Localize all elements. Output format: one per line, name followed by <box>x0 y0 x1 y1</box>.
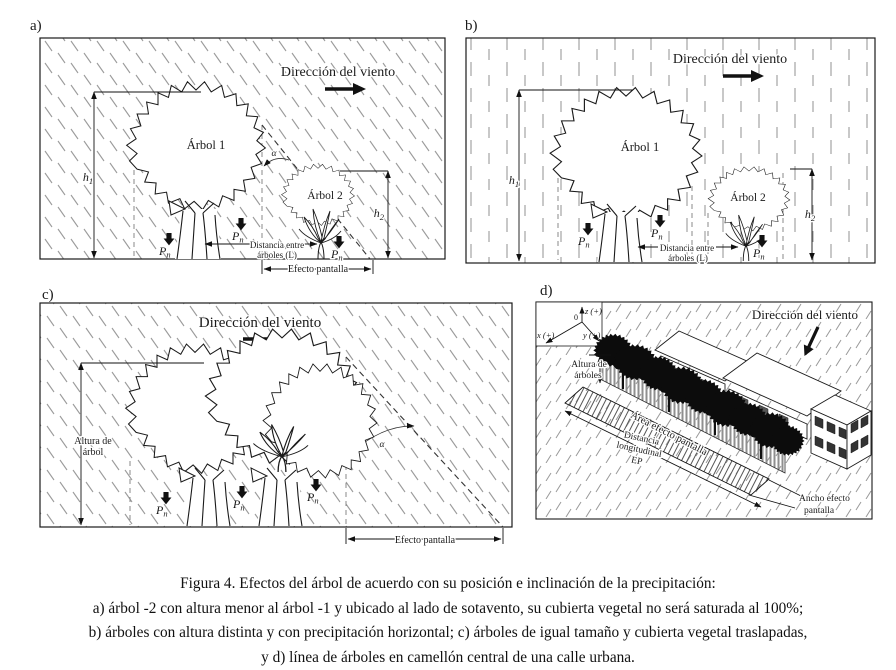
screen-effect-label: Efecto pantalla <box>395 535 456 546</box>
axis-origin-label: 0 <box>574 313 578 322</box>
screen-effect-label: Efecto pantalla <box>288 264 349 275</box>
distance-label-line1: Distancia entre <box>250 240 304 250</box>
axis-z-label: z (+) <box>584 306 602 316</box>
tree-height-label-line2: árbol <box>83 447 104 458</box>
panel-d: d) Dirección del viento z (+) 0 x (+) y … <box>533 283 877 527</box>
distance-label-line2: árboles (L) <box>257 250 297 260</box>
distance-label-line1: Distancia entre <box>660 243 714 253</box>
axis-x-label: x (+) <box>536 330 554 340</box>
axis-indicator: z (+) 0 x (+) y (+) <box>536 302 602 346</box>
caption-line-1: Figura 4. Efectos del árbol de acuerdo c… <box>0 572 896 597</box>
caption-line-2: a) árbol -2 con altura menor al árbol -1… <box>0 597 896 622</box>
trees-height-label-line1: Altura de <box>571 360 607 370</box>
wind-direction-label: Dirección del viento <box>673 52 787 67</box>
tree-height-label-line1: Altura de <box>74 436 112 447</box>
trees-height-label-line2: árboles <box>574 371 602 381</box>
wind-direction-label: Dirección del viento <box>752 307 858 322</box>
wind-direction-label: Dirección del viento <box>199 315 321 331</box>
distance-label-line2: árboles (L) <box>668 253 708 263</box>
tree1-label: Árbol 1 <box>187 138 226 152</box>
figure-caption: Figura 4. Efectos del árbol de acuerdo c… <box>0 564 896 670</box>
tree2-label: Árbol 2 <box>307 188 343 202</box>
wind-direction-label: Dirección del viento <box>281 65 395 80</box>
panel-c: c) Dirección del viento Altura de árbol … <box>30 283 522 551</box>
panel-a-tag: a) <box>30 18 42 34</box>
panel-c-tag: c) <box>42 287 54 303</box>
panel-b: b) Dirección del viento Árbol 1 Árbol 2 … <box>462 8 892 272</box>
panel-b-tag: b) <box>465 18 478 34</box>
tree1-label: Árbol 1 <box>621 140 660 154</box>
tree2-label: Árbol 2 <box>730 190 766 204</box>
screen-width-label-line2: pantalla <box>804 506 835 516</box>
figure-page: a) Dirección del viento Árbol 1 Árbol 2 … <box>0 0 896 670</box>
panel-d-tag: d) <box>540 283 553 299</box>
axis-y-label: y (+) <box>582 330 600 340</box>
panel-a: a) Dirección del viento Árbol 1 Árbol 2 … <box>28 8 448 286</box>
caption-line-4: y d) línea de árboles en camellón centra… <box>0 646 896 670</box>
screen-width-label-line1: Ancho efecto <box>799 493 850 504</box>
caption-line-3: b) árboles con altura distinta y con pre… <box>0 621 896 646</box>
